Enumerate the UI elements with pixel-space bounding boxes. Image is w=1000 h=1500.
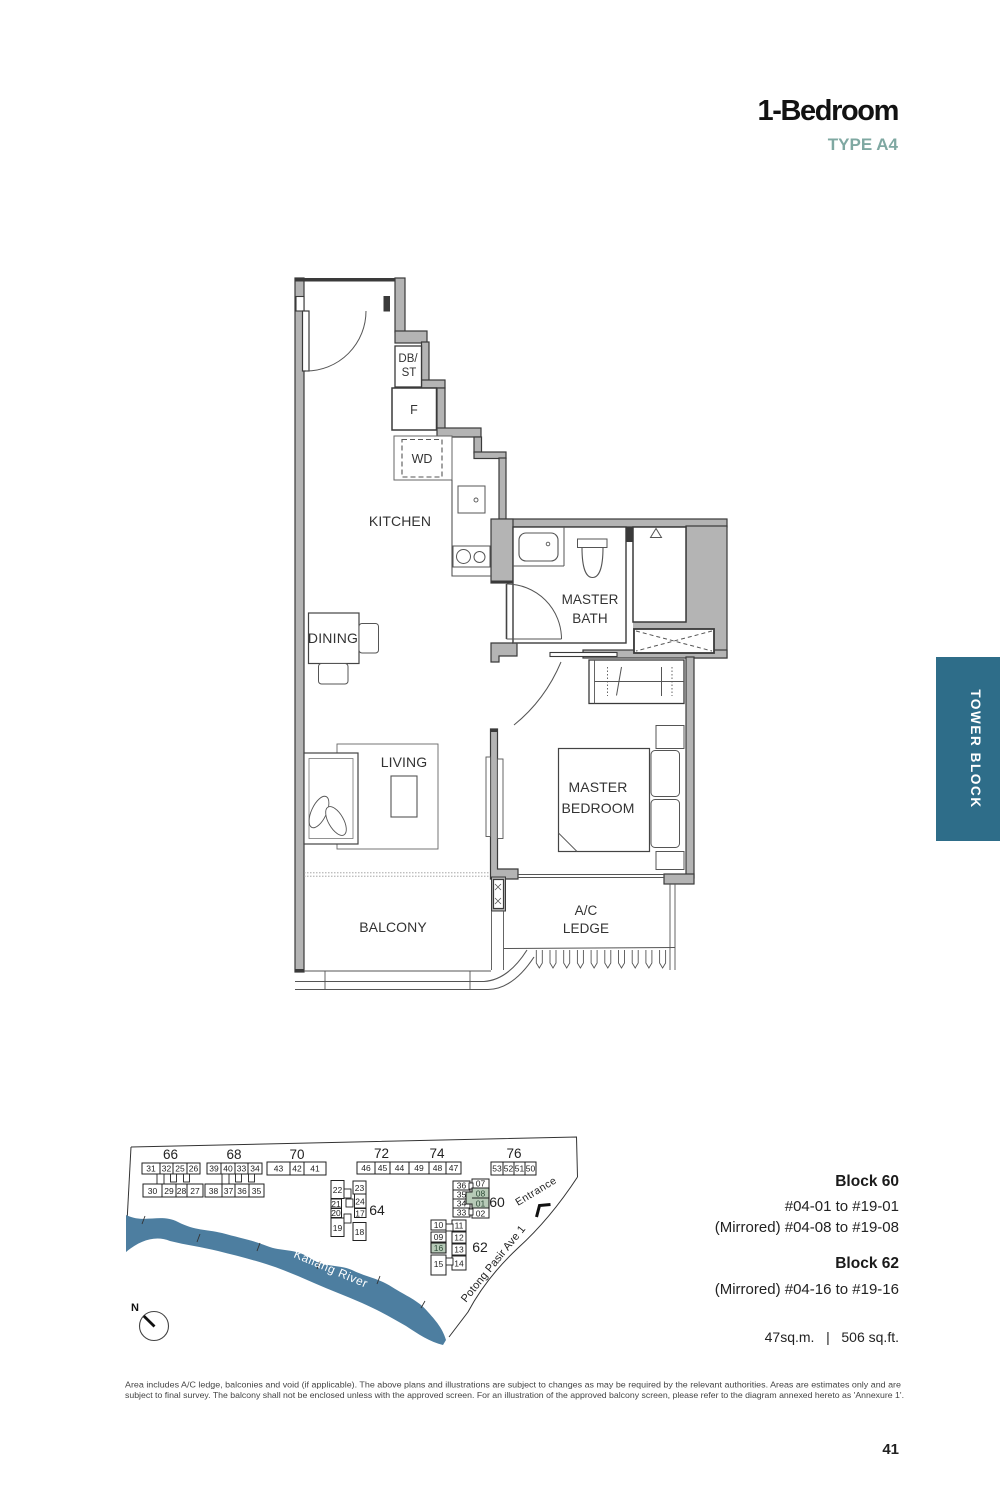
svg-text:46: 46 [361,1163,371,1173]
svg-text:34: 34 [250,1164,260,1174]
svg-text:64: 64 [369,1202,385,1218]
svg-text:DB/: DB/ [398,353,418,365]
svg-text:70: 70 [289,1147,304,1162]
svg-text:01: 01 [476,1199,486,1209]
svg-text:62: 62 [472,1239,488,1255]
svg-text:24: 24 [355,1197,365,1207]
svg-text:32: 32 [162,1164,172,1174]
svg-text:14: 14 [454,1259,464,1269]
svg-text:33: 33 [457,1208,467,1218]
svg-text:76: 76 [506,1146,521,1161]
svg-text:44: 44 [395,1163,405,1173]
svg-text:10: 10 [434,1220,444,1230]
svg-text:16: 16 [434,1243,444,1253]
svg-text:23: 23 [355,1183,365,1193]
svg-text:37: 37 [224,1186,234,1196]
svg-text:38: 38 [209,1186,219,1196]
svg-text:43: 43 [274,1164,284,1174]
svg-text:26: 26 [189,1164,199,1174]
svg-text:11: 11 [455,1221,464,1231]
svg-text:18: 18 [355,1227,365,1237]
svg-text:50: 50 [526,1164,536,1174]
svg-text:Area includes A/C ledge, balco: Area includes A/C ledge, balconies and v… [125,1380,901,1390]
svg-text:48: 48 [433,1163,443,1173]
svg-text:20: 20 [331,1208,341,1218]
svg-text:66: 66 [163,1147,178,1162]
svg-text:47sq.m. | 506 sq.ft.: 47sq.m. | 506 sq.ft. [765,1329,899,1345]
svg-text:A/C: A/C [575,903,598,918]
svg-text:LIVING: LIVING [381,754,428,770]
svg-text:TYPE A4: TYPE A4 [828,135,899,154]
svg-text:31: 31 [146,1164,156,1174]
svg-text:39: 39 [209,1164,219,1174]
svg-text:#04-01 to #19-01: #04-01 to #19-01 [785,1198,899,1215]
svg-text:ST: ST [402,367,417,379]
svg-text:36: 36 [237,1186,247,1196]
svg-text:42: 42 [292,1164,302,1174]
svg-text:41: 41 [310,1164,320,1174]
svg-text:07: 07 [476,1179,486,1189]
svg-text:13: 13 [454,1245,464,1255]
svg-text:LEDGE: LEDGE [563,921,609,936]
svg-text:68: 68 [226,1147,241,1162]
svg-text:F: F [410,403,418,417]
svg-text:72: 72 [374,1146,389,1161]
svg-text:22: 22 [333,1185,343,1195]
svg-text:40: 40 [223,1164,233,1174]
svg-text:12: 12 [454,1233,464,1243]
svg-text:49: 49 [414,1163,424,1173]
svg-text:19: 19 [333,1223,343,1233]
svg-text:60: 60 [489,1194,505,1210]
svg-text:30: 30 [148,1186,158,1196]
svg-text:BATH: BATH [572,611,607,626]
svg-text:29: 29 [164,1186,174,1196]
svg-text:35: 35 [252,1186,262,1196]
svg-text:28: 28 [177,1186,187,1196]
svg-text:DINING: DINING [308,630,358,646]
svg-text:WD: WD [412,452,433,466]
svg-text:1-Bedroom: 1-Bedroom [758,95,898,127]
svg-text:(Mirrored) #04-08 to #19-08: (Mirrored) #04-08 to #19-08 [715,1219,899,1236]
svg-text:Block 60: Block 60 [835,1173,899,1190]
svg-text:subject to final survey. The b: subject to final survey. The balcony sha… [125,1390,904,1400]
svg-text:45: 45 [378,1163,388,1173]
svg-text:53: 53 [492,1164,502,1174]
svg-text:02: 02 [476,1209,486,1219]
svg-text:74: 74 [429,1146,445,1161]
svg-text:N: N [131,1302,139,1314]
svg-text:MASTER: MASTER [562,592,619,607]
svg-text:52: 52 [504,1164,514,1174]
svg-text:47: 47 [449,1163,459,1173]
svg-text:41: 41 [882,1441,899,1458]
svg-text:MASTER: MASTER [569,779,628,795]
svg-text:KITCHEN: KITCHEN [369,513,431,529]
svg-text:Block 62: Block 62 [835,1255,899,1272]
svg-text:08: 08 [476,1189,486,1199]
svg-text:25: 25 [175,1164,185,1174]
svg-text:TOWER BLOCK: TOWER BLOCK [968,689,983,808]
svg-text:09: 09 [434,1232,444,1242]
svg-text:(Mirrored) #04-16 to #19-16: (Mirrored) #04-16 to #19-16 [715,1281,899,1298]
svg-text:51: 51 [515,1164,525,1174]
svg-text:33: 33 [237,1164,247,1174]
svg-text:17: 17 [355,1209,365,1219]
svg-text:BALCONY: BALCONY [359,919,427,935]
svg-text:15: 15 [434,1259,444,1269]
svg-text:BEDROOM: BEDROOM [561,800,634,816]
svg-text:27: 27 [190,1186,200,1196]
